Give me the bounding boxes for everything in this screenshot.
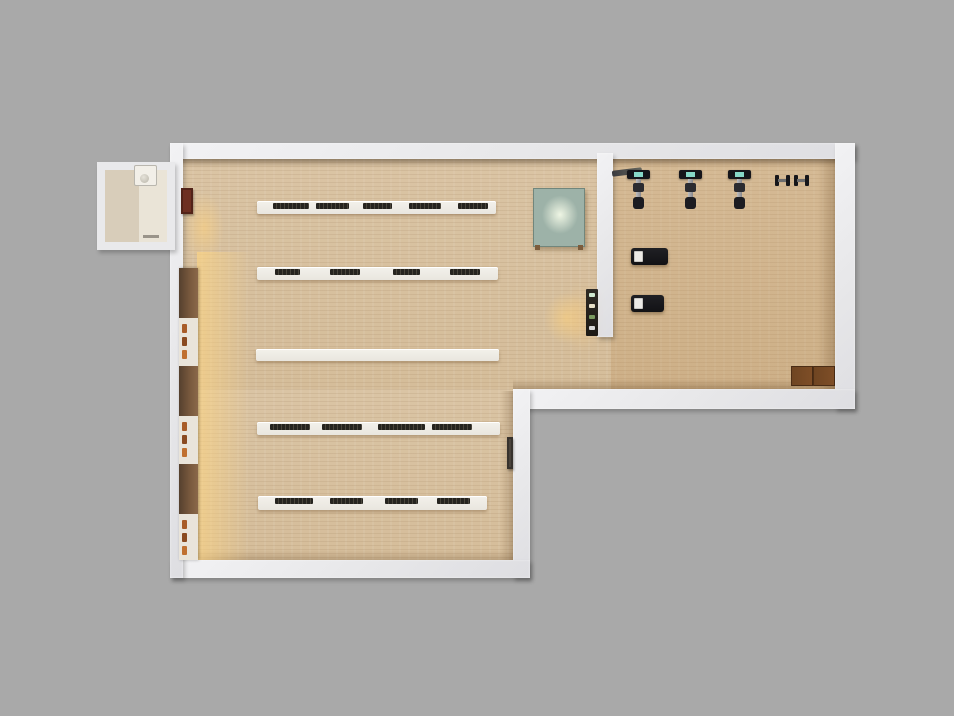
shadow-gym-bottom-wall [513,379,835,389]
dumbbell-pair-bar [797,179,805,182]
exercise-bike-3-screen [735,172,744,177]
display-table-teal [533,188,585,247]
vestibule-door-mark [143,235,159,238]
dumbbell-pair-cap [786,175,790,186]
exercise-bike-2 [676,170,706,210]
exercise-bench-2 [631,295,664,312]
wall-bookcase-lit-book [182,337,187,346]
exercise-bench-1-console [634,251,643,262]
wall-rail [507,437,513,469]
shelf-row-2-books-3 [393,269,420,275]
dumbbell-pair [775,174,809,187]
shelf-row-2-books-1 [275,269,300,275]
wood-bench-plank-1 [791,366,813,386]
shelf-row-1-books-1 [273,203,309,209]
wall-bookcase-lit-wood-1 [179,268,198,318]
exercise-bike-2-base [685,197,696,209]
wood-bench [791,366,834,384]
exercise-bike-1-seat [633,183,644,192]
display-table-teal-leg-left [535,245,540,250]
shelf-row-1 [257,201,496,214]
wall-right [835,143,855,409]
display-case-divider-item-2 [589,304,595,308]
exercise-bike-1-base [633,197,644,209]
wall-bookcase-lit-wood-3 [179,464,198,514]
shelf-row-1-books-3 [363,203,392,209]
exercise-bike-2-seat [685,183,696,192]
exercise-bike-3-seat [734,183,745,192]
wood-bench-plank-2 [813,366,835,386]
wall-step-vertical [513,389,530,578]
shelf-row-1-books-5 [458,203,488,209]
shelf-row-2 [257,267,498,280]
wall-divider [597,153,613,337]
wall-bookcase-lit-wood-2 [179,366,198,416]
shelf-row-4-books-1 [270,424,310,430]
shelf-row-4-books-3 [378,424,425,430]
wall-bookcase-lit-book [182,324,187,333]
shadow-right-wall [818,158,835,389]
exercise-bike-2-screen [686,172,695,177]
shelf-row-5-books-4 [437,498,470,504]
shelf-row-5-books-1 [275,498,313,504]
shelf-row-4-books-2 [322,424,362,430]
wall-bookcase-lit-book [182,448,187,457]
sink-fixture [134,165,157,186]
wall-cabinet-red [181,188,193,214]
wall-gym-bottom [513,389,855,409]
display-case-divider-item-4 [589,326,595,330]
exercise-bike-1 [624,170,654,210]
display-case-divider [586,289,598,336]
wall-bookcase-lit-book [182,546,187,555]
shelf-row-2-books-2 [330,269,360,275]
wall-bookcase-lit [179,268,198,560]
shelf-row-2-books-4 [450,269,480,275]
wall-bookcase-lit-book [182,533,187,542]
shelf-row-3-empty [256,349,499,361]
wall-bookcase-lit-book [182,350,187,359]
shelf-row-4 [257,422,500,435]
display-table-teal-leg-right [578,245,583,250]
wall-bookcase-lit-shelf-3 [179,514,198,560]
wall-bookcase-lit-book [182,520,187,529]
exercise-bench-1 [631,248,668,265]
exercise-bike-3 [725,170,755,210]
wall-library-bottom [170,560,530,578]
shadow-top-wall [183,158,835,168]
wall-bookcase-lit-shelf-2 [179,416,198,464]
wall-top [170,143,855,159]
exercise-bike-3-base [734,197,745,209]
shelf-row-5-books-3 [385,498,418,504]
shelf-row-1-books-2 [316,203,349,209]
shelf-row-1-books-4 [409,203,441,209]
shelf-row-5-books-2 [330,498,363,504]
display-case-divider-item-1 [589,293,595,297]
display-case-divider-item-3 [589,315,595,319]
shadow-step-wall [501,391,513,561]
shelf-row-5 [258,496,487,510]
wall-bookcase-lit-book [182,422,187,431]
shelf-row-4-books-4 [432,424,472,430]
exercise-bench-2-console [634,298,643,309]
floor-lower-left [183,389,513,563]
wall-bookcase-lit-book [182,435,187,444]
dumbbell-pair-bar [778,179,786,182]
floorplan-scene [0,0,954,716]
exercise-bike-1-screen [634,172,643,177]
wall-bookcase-lit-shelf-1 [179,318,198,366]
dumbbell-pair-cap [805,175,809,186]
